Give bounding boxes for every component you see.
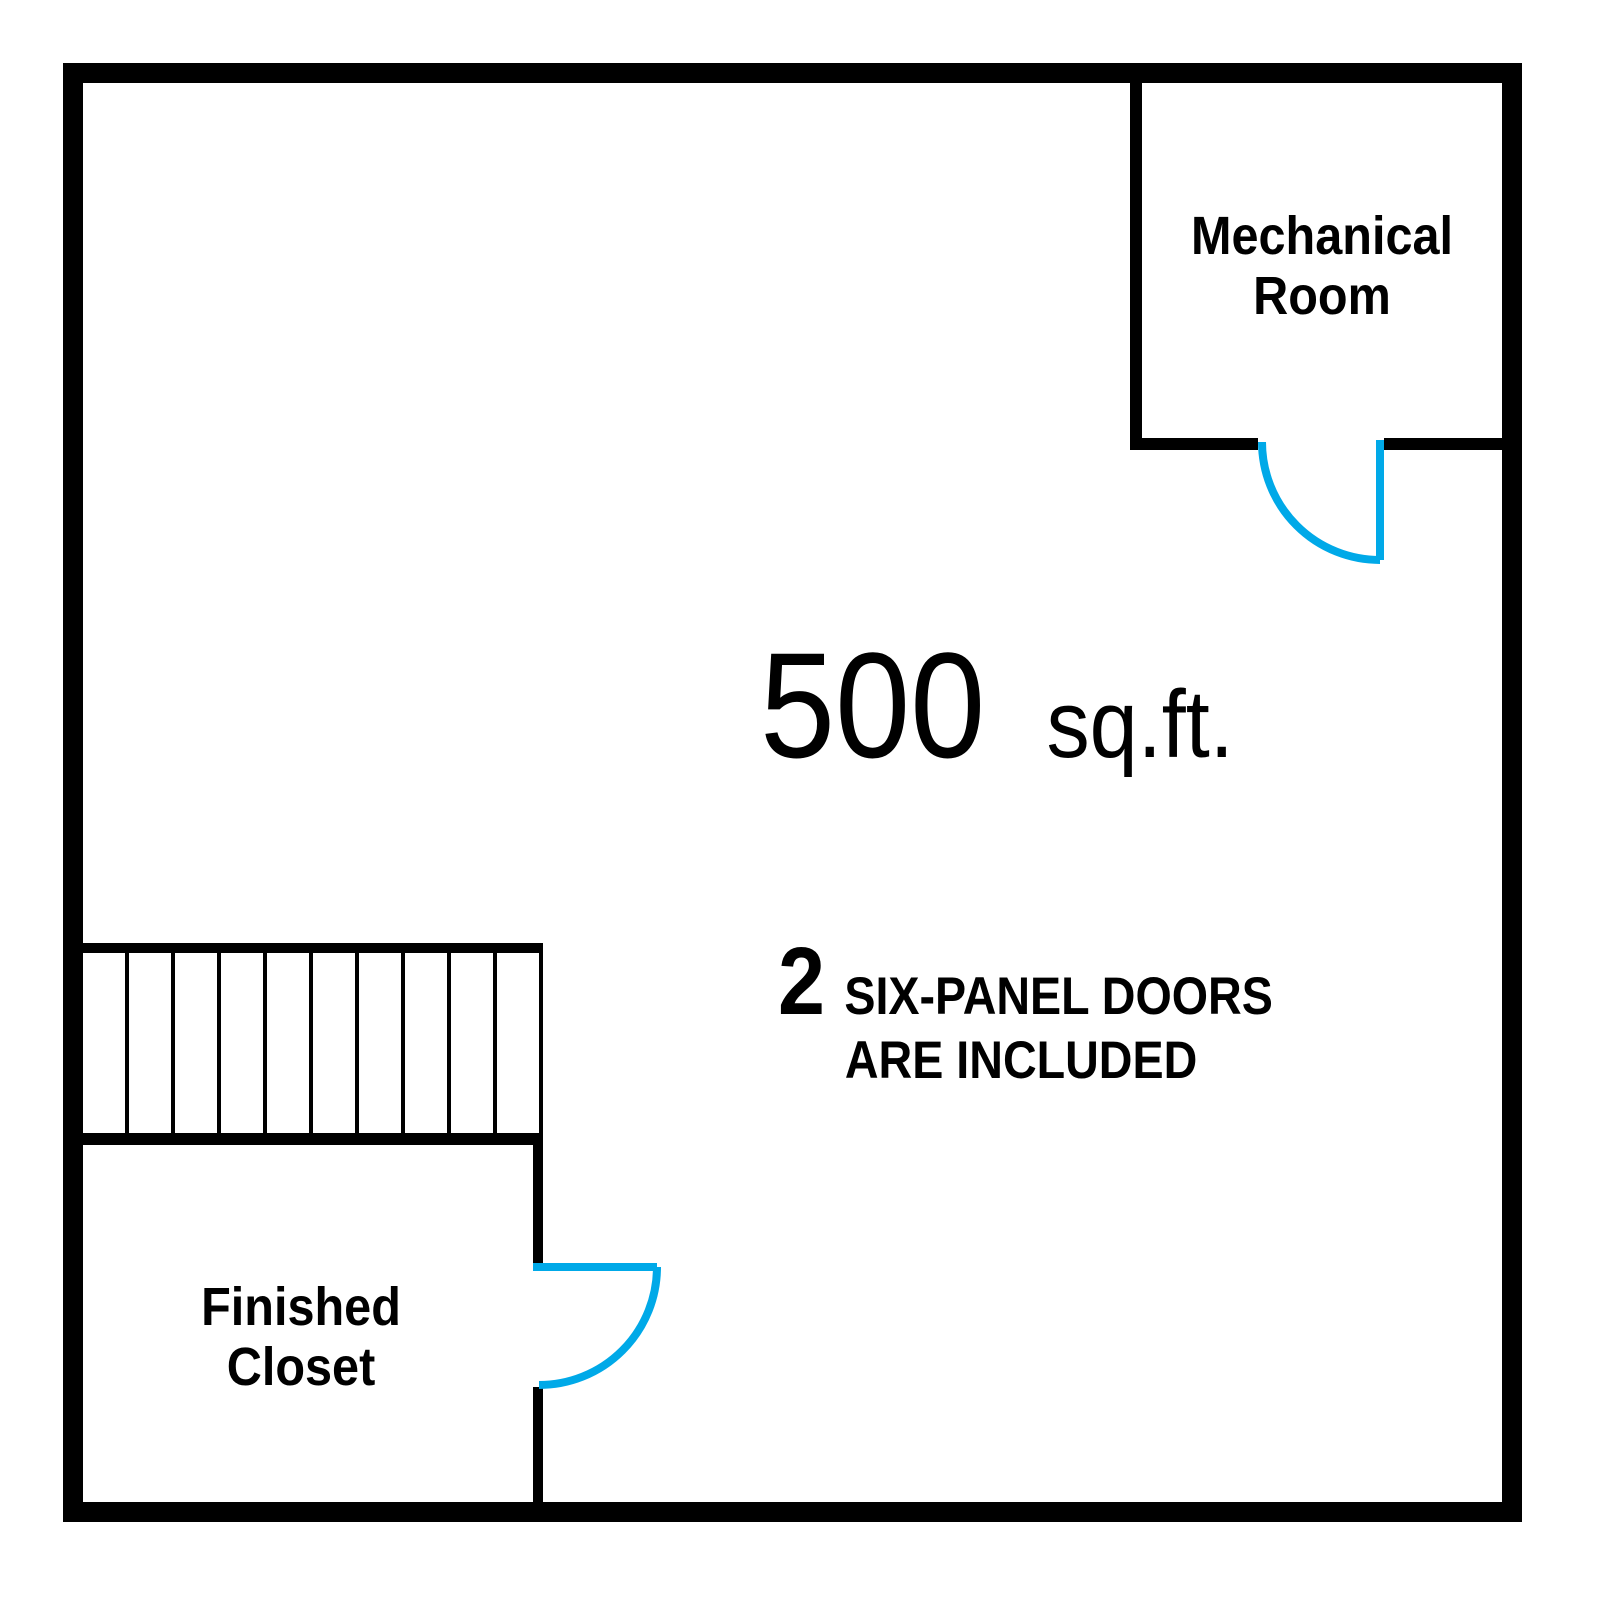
stair-tread [355, 953, 401, 1133]
closet-label: Finished Closet [105, 1277, 497, 1397]
mechanical-room-wall-bottom-left-segment [1130, 438, 1258, 450]
doors-note-count: 2 [778, 934, 825, 1030]
area-value: 500 [760, 630, 985, 780]
stair-tread [217, 953, 263, 1133]
area-unit: sq.ft. [1046, 677, 1233, 773]
mechanical-room-label-line2: Room [1160, 266, 1484, 326]
stair-tread [171, 953, 217, 1133]
closet-wall-right-upper [533, 1145, 543, 1263]
mechanical-room-wall-bottom-right-segment [1384, 438, 1502, 450]
doors-note-line1: 2 SIX-PANEL DOORS [778, 934, 1273, 1030]
area-label: 500 sq.ft. [760, 630, 1234, 780]
closet-label-line2: Closet [105, 1337, 497, 1397]
stair-tread [125, 953, 171, 1133]
closet-label-line1: Finished [105, 1277, 497, 1337]
stairs [83, 943, 543, 1145]
stair-tread [83, 953, 125, 1133]
mechanical-room-label-line1: Mechanical [1160, 206, 1484, 266]
stair-tread [263, 953, 309, 1133]
stair-tread [447, 953, 493, 1133]
stair-tread [493, 953, 539, 1133]
floor-plan: Mechanical Room 500 sq.ft. 2 SIX-PANEL D… [0, 0, 1600, 1600]
closet-wall-right-lower [533, 1387, 543, 1502]
stair-tread [309, 953, 355, 1133]
mechanical-room-label: Mechanical Room [1160, 206, 1484, 326]
mechanical-room-wall-left [1130, 83, 1142, 450]
stair-tread [401, 953, 447, 1133]
doors-note: 2 SIX-PANEL DOORS ARE INCLUDED [778, 934, 1273, 1087]
